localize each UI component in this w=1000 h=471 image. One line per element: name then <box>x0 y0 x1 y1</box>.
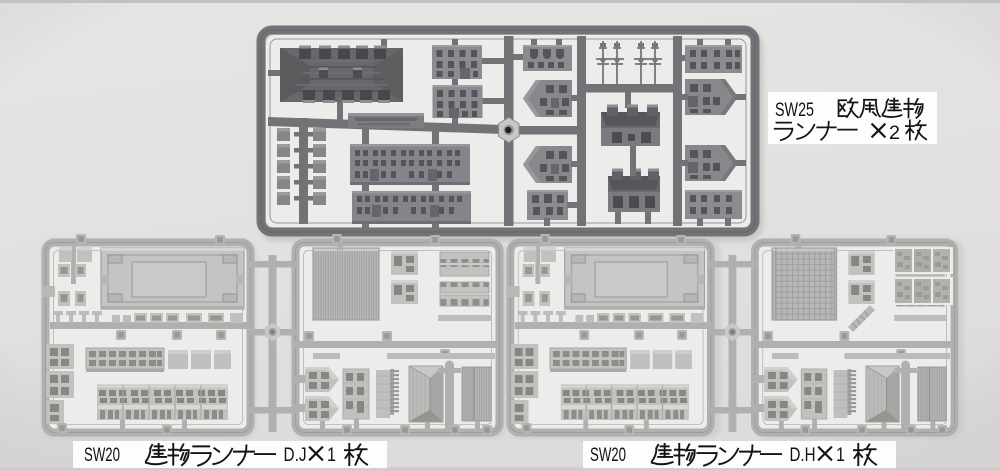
svg-text:1: 1 <box>327 445 336 466</box>
svg-text:SW20: SW20 <box>590 445 626 466</box>
svg-text:2: 2 <box>889 123 900 144</box>
svg-text:D.J: D.J <box>284 445 307 466</box>
svg-text:1: 1 <box>836 445 845 466</box>
svg-text:D.H: D.H <box>790 445 816 466</box>
svg-text:SW20: SW20 <box>84 445 120 466</box>
svg-text:SW25: SW25 <box>775 100 814 121</box>
